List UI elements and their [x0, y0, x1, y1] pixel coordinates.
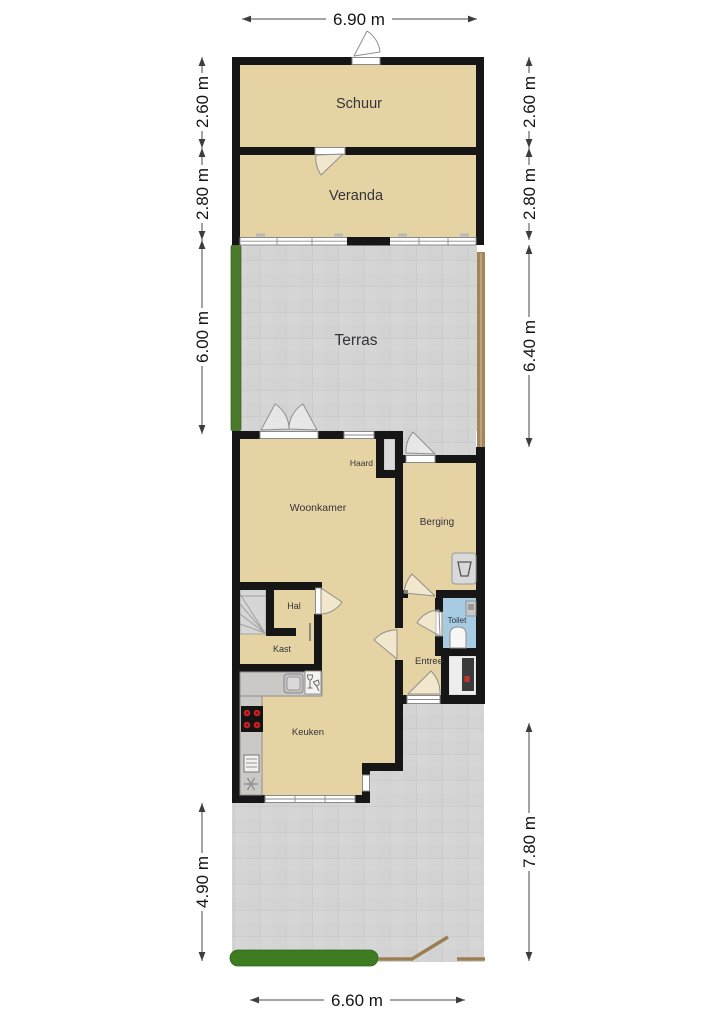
dim-left-1-label: 2.60 m	[193, 76, 212, 128]
schuur-door-swing	[354, 31, 380, 56]
arrowhead	[526, 952, 533, 961]
arrowhead	[468, 16, 477, 23]
dim-left-2-label: 2.80 m	[193, 168, 212, 220]
arrowhead	[526, 438, 533, 447]
wall	[240, 147, 315, 155]
hal-door-leaf	[316, 588, 322, 614]
veranda-door-leaf	[315, 148, 345, 155]
sink-basin	[287, 677, 300, 690]
dim-right-1-label: 2.60 m	[520, 76, 539, 128]
wall	[374, 431, 403, 439]
arrowhead	[199, 803, 206, 812]
schuur-label: Schuur	[336, 96, 382, 112]
entree-label: Entree	[415, 656, 443, 667]
wall	[232, 57, 352, 65]
cooktop-icon	[241, 706, 263, 732]
wall	[440, 695, 485, 704]
wall	[476, 57, 484, 245]
washer-icon	[452, 553, 476, 584]
hal-label: Hal	[287, 601, 301, 611]
arrowhead	[526, 148, 533, 157]
arrowhead	[199, 148, 206, 157]
arrowhead	[526, 57, 533, 66]
floorplan-image: Schuur Veranda Terras Woonkamer Haard Be…	[0, 0, 724, 1024]
wall	[232, 57, 240, 245]
wall	[232, 795, 265, 803]
woonkamer-label: Woonkamer	[290, 502, 347, 514]
hedge-bottom	[230, 950, 378, 966]
dim-right-3-label: 6.40 m	[520, 320, 539, 372]
wall	[314, 582, 322, 588]
toilet-label: Toilet	[448, 616, 467, 625]
arrowhead	[526, 723, 533, 732]
arrowhead	[242, 16, 251, 23]
wall	[395, 695, 407, 704]
stairs-area	[240, 588, 266, 634]
kitchen-side-window	[363, 775, 370, 791]
garden-tiles-left	[232, 803, 370, 962]
haard-label: Haard	[350, 458, 373, 468]
toilet-bowl-icon	[450, 627, 466, 648]
wall	[345, 147, 476, 155]
arrowhead	[250, 997, 259, 1004]
garden-tiles-mid	[370, 771, 403, 962]
staircase	[240, 588, 266, 634]
wall	[395, 660, 403, 771]
arrowhead	[199, 231, 206, 240]
wall	[314, 614, 322, 672]
veranda-label: Veranda	[329, 188, 384, 204]
window-mark	[460, 234, 469, 237]
burner-center	[246, 724, 248, 726]
dim-right-4-label: 7.80 m	[520, 816, 539, 868]
berging-door-leaf	[406, 456, 435, 463]
floorplan-page: Schuur Veranda Terras Woonkamer Haard Be…	[0, 0, 724, 1024]
boiler-indicator	[465, 676, 470, 682]
wall	[435, 648, 480, 656]
wall	[232, 431, 260, 439]
berging-label: Berging	[420, 517, 454, 528]
burner-center	[246, 712, 248, 714]
outbuilding	[232, 31, 484, 246]
dim-left-4-label: 4.90 m	[193, 856, 212, 908]
wall	[435, 455, 480, 463]
arrowhead	[526, 231, 533, 240]
fireplace-niche	[384, 439, 395, 470]
schuur-door-leaf	[352, 58, 380, 65]
garden-tiles-right	[403, 704, 484, 962]
wall	[232, 582, 322, 590]
window-mark	[398, 234, 407, 237]
wall	[347, 237, 390, 246]
dim-right-2-label: 2.80 m	[520, 168, 539, 220]
wall	[232, 431, 240, 803]
wall	[436, 590, 480, 598]
wall	[395, 439, 403, 628]
kast-label: Kast	[273, 644, 292, 654]
arrowhead	[199, 240, 206, 249]
wall	[355, 795, 370, 803]
arrowhead	[526, 139, 533, 148]
wall	[376, 470, 403, 478]
toilet-sink-basin	[468, 604, 474, 610]
oven-icon	[244, 755, 259, 772]
dim-top-label: 6.90 m	[333, 10, 385, 29]
arrowhead	[199, 57, 206, 66]
burner-center	[256, 724, 258, 726]
arrowhead	[456, 997, 465, 1004]
wall	[318, 431, 344, 439]
terras-label: Terras	[334, 332, 377, 349]
keuken-label: Keuken	[292, 727, 324, 738]
wall	[266, 628, 296, 636]
arrowhead	[199, 425, 206, 434]
window-mark	[334, 234, 343, 237]
arrowhead	[199, 952, 206, 961]
dim-bottom-label: 6.60 m	[331, 991, 383, 1010]
dim-left-3-label: 6.00 m	[193, 311, 212, 363]
window-mark	[256, 234, 265, 237]
wall	[476, 447, 485, 704]
arrowhead	[526, 245, 533, 254]
arrowhead	[199, 139, 206, 148]
wall	[380, 57, 484, 65]
boiler-unit	[462, 658, 474, 691]
burner-center	[256, 712, 258, 714]
hedge-left	[231, 245, 241, 431]
french-door-sill	[260, 432, 318, 439]
wall	[362, 763, 370, 775]
